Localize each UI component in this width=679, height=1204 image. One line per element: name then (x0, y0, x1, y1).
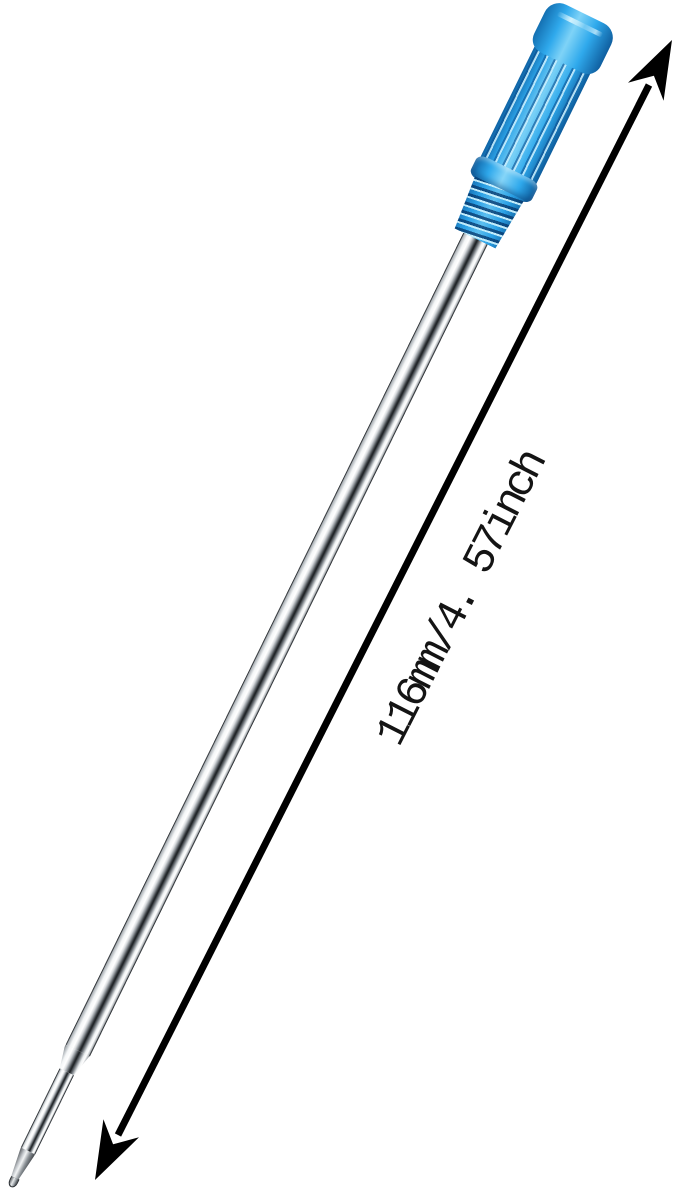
product-photo-canvas: 116mm/4. 57inch (0, 0, 679, 1204)
arrowhead-up-icon (628, 40, 672, 101)
arrow-shaft (118, 85, 649, 1135)
arrowhead-down-icon (95, 1119, 139, 1180)
dimension-arrow (0, 0, 679, 1204)
